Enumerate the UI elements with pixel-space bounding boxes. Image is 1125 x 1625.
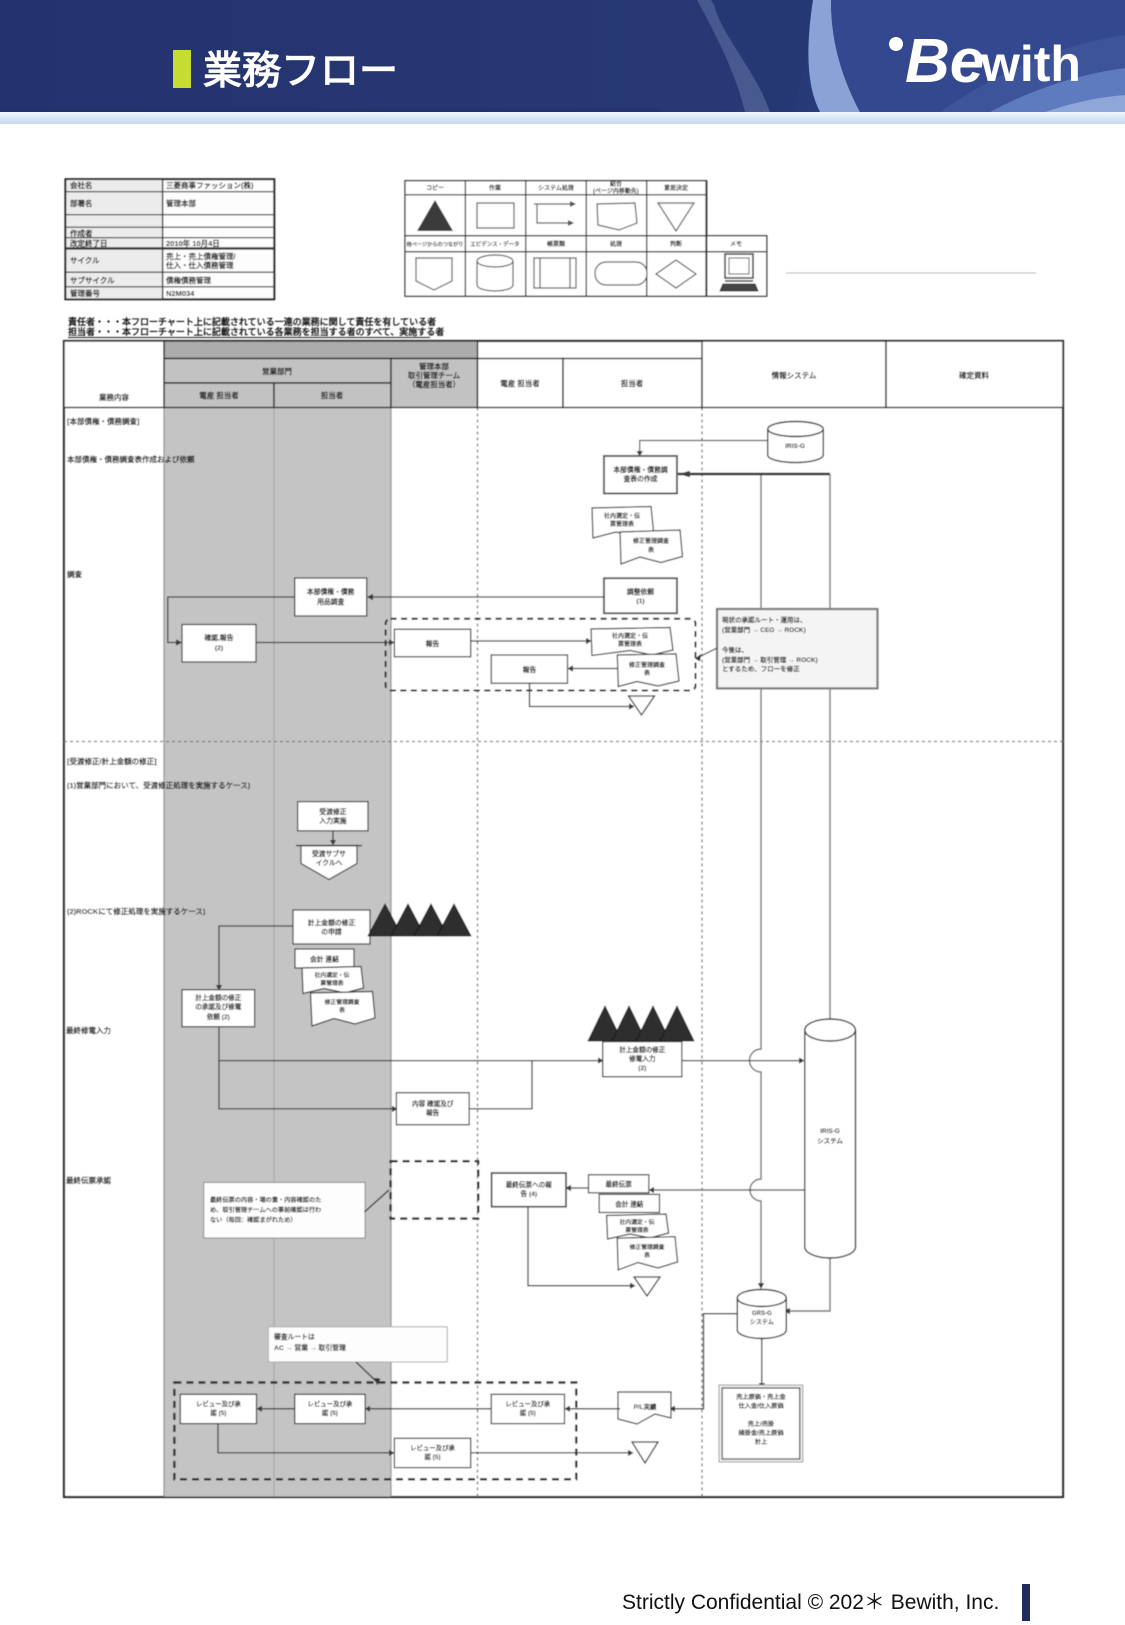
svg-text:確定資料: 確定資料 xyxy=(958,370,989,380)
svg-text:認 (5): 認 (5) xyxy=(425,1452,441,1461)
svg-text:エビデンス・データ: エビデンス・データ xyxy=(470,240,519,248)
svg-text:社内選定・伝: 社内選定・伝 xyxy=(314,971,350,979)
svg-text:修正管理調査: 修正管理調査 xyxy=(324,998,360,1006)
svg-text:最終伝票承認: 最終伝票承認 xyxy=(66,1175,111,1185)
svg-text:イクルへ: イクルへ xyxy=(316,858,343,867)
svg-text:帳票類: 帳票類 xyxy=(547,240,566,248)
svg-text:N2M034: N2M034 xyxy=(166,289,195,298)
svg-text:(1)営業部門において、受渡修正処理を実施するケース): (1)営業部門において、受渡修正処理を実施するケース) xyxy=(67,780,251,790)
svg-text:with: with xyxy=(980,36,1081,92)
svg-text:2010年 10月4日: 2010年 10月4日 xyxy=(166,238,220,248)
svg-text:認 (5): 認 (5) xyxy=(322,1408,338,1417)
svg-text:処理: 処理 xyxy=(609,240,622,248)
svg-text:とするため、フローを修正: とするため、フローを修正 xyxy=(722,664,800,673)
svg-text:(2): (2) xyxy=(638,1065,646,1072)
svg-text:(2): (2) xyxy=(215,645,223,652)
svg-text:売上原価・売上金: 売上原価・売上金 xyxy=(736,1393,786,1401)
svg-text:の承認及び修電: の承認及び修電 xyxy=(195,1002,242,1011)
svg-text:担当者: 担当者 xyxy=(321,390,344,400)
svg-text:社内選定・伝: 社内選定・伝 xyxy=(603,512,640,520)
svg-text:本部債権・債務調査表作成および依頼: 本部債権・債務調査表作成および依頼 xyxy=(66,454,195,464)
svg-text:最終修電入力: 最終修電入力 xyxy=(66,1025,111,1035)
svg-text:(2)ROCKにて修正処理を実施するケース): (2)ROCKにて修正処理を実施するケース) xyxy=(67,906,206,916)
svg-text:判断: 判断 xyxy=(670,240,682,248)
svg-text:告 (4): 告 (4) xyxy=(521,1189,537,1198)
svg-text:依頼 (2): 依頼 (2) xyxy=(207,1012,230,1021)
svg-text:管理本部: 管理本部 xyxy=(166,198,196,208)
svg-text:レビュー及び承: レビュー及び承 xyxy=(505,1399,550,1408)
svg-text:本部債権・債務調: 本部債権・債務調 xyxy=(613,465,668,474)
svg-text:諸掛金/売上原価: 諸掛金/売上原価 xyxy=(738,1429,784,1437)
svg-text:修正管理調査: 修正管理調査 xyxy=(632,537,669,545)
svg-text:票管理表: 票管理表 xyxy=(617,640,643,648)
svg-text:Be: Be xyxy=(905,27,984,96)
svg-text:票管理表: 票管理表 xyxy=(609,520,635,528)
svg-text:[本部債権・債務調査]: [本部債権・債務調査] xyxy=(67,416,140,426)
svg-text:認 (5): 認 (5) xyxy=(520,1408,536,1417)
svg-text:修正管理調査: 修正管理調査 xyxy=(629,1243,665,1251)
svg-text:受渡サブサ: 受渡サブサ xyxy=(312,849,346,858)
svg-text:Strictly Confidential © 202＊: Strictly Confidential © 202＊ Bewith, Inc… xyxy=(622,1591,999,1614)
svg-text:IRIS-G: IRIS-G xyxy=(785,443,805,450)
svg-text:管理本部: 管理本部 xyxy=(419,361,449,371)
svg-text:計上金額の修正: 計上金額の修正 xyxy=(195,993,242,1002)
svg-text:債権債務管理: 債権債務管理 xyxy=(165,275,211,285)
svg-text:[受渡修正/計上金額の修正]: [受渡修正/計上金額の修正] xyxy=(67,756,157,766)
svg-text:入力実施: 入力実施 xyxy=(319,816,346,825)
svg-text:内容 確認及び: 内容 確認及び xyxy=(412,1099,454,1108)
svg-text:担当者: 担当者 xyxy=(621,378,644,388)
svg-text:計上: 計上 xyxy=(755,1438,768,1446)
svg-text:（電産担当者）: （電産担当者） xyxy=(408,379,461,389)
svg-text:GRS-G: GRS-G xyxy=(752,1311,772,1317)
svg-text:現状の承認ルート・運用は、: 現状の承認ルート・運用は、 xyxy=(722,615,807,624)
svg-text:最終伝票の内容・場の重・内容確認のた: 最終伝票の内容・場の重・内容確認のた xyxy=(210,1196,321,1204)
svg-text:管理番号: 管理番号 xyxy=(70,288,100,298)
svg-text:会計 連結: 会計 連結 xyxy=(615,1200,644,1209)
svg-text:表: 表 xyxy=(644,1251,650,1259)
svg-text:修電入力: 修電入力 xyxy=(628,1054,656,1063)
svg-text:報告: 報告 xyxy=(426,639,440,648)
svg-text:め、取引管理チームへの事前確認は行わ: め、取引管理チームへの事前確認は行わ xyxy=(210,1206,321,1214)
svg-text:認 (5): 認 (5) xyxy=(210,1408,226,1417)
svg-text:表: 表 xyxy=(339,1006,345,1014)
svg-text:本部債権・債務: 本部債権・債務 xyxy=(307,587,355,596)
svg-text:調査: 調査 xyxy=(67,569,82,579)
svg-text:審査ルートは: 審査ルートは xyxy=(273,1332,315,1341)
svg-text:結合: 結合 xyxy=(610,180,623,188)
svg-text:業務フロー: 業務フロー xyxy=(203,50,398,93)
svg-text:最終伝票: 最終伝票 xyxy=(606,1180,633,1189)
svg-text:意思決定: 意思決定 xyxy=(664,184,688,192)
svg-text:情報システム: 情報システム xyxy=(771,370,817,380)
svg-text:ない（毎回：確認まがれため）: ない（毎回：確認まがれため） xyxy=(210,1216,297,1224)
svg-text:電産 担当者: 電産 担当者 xyxy=(199,390,239,400)
svg-text:他ページからのつながり: 他ページからのつながり xyxy=(406,240,464,248)
svg-text:営業部門: 営業部門 xyxy=(262,366,292,376)
svg-text:票管理表: 票管理表 xyxy=(320,979,343,987)
svg-text:計上金額の修正: 計上金額の修正 xyxy=(308,918,356,927)
svg-text:三菱商事ファッション(株): 三菱商事ファッション(株) xyxy=(166,180,254,190)
svg-text:確認,報告: 確認,報告 xyxy=(204,633,233,642)
svg-text:電産 担当者: 電産 担当者 xyxy=(500,378,540,388)
svg-text:サブサイクル: サブサイクル xyxy=(70,275,115,285)
svg-text:コピー: コピー xyxy=(426,184,444,192)
svg-text:用品調査: 用品調査 xyxy=(316,597,344,606)
svg-text:(ページ内移動先): (ページ内移動先) xyxy=(593,187,639,195)
svg-text:計上金額の修正: 計上金額の修正 xyxy=(619,1045,666,1054)
svg-text:IRIS-G: IRIS-G xyxy=(820,1128,840,1135)
svg-text:P/L実績: P/L実績 xyxy=(634,1402,657,1411)
svg-text:報告: 報告 xyxy=(426,1108,440,1117)
svg-text:報告: 報告 xyxy=(523,665,537,674)
svg-text:(営業部門 → 取引管理 → ROCK): (営業部門 → 取引管理 → ROCK) xyxy=(722,655,818,664)
svg-text:業務内容: 業務内容 xyxy=(98,392,129,402)
svg-text:受渡修正: 受渡修正 xyxy=(319,807,346,816)
svg-text:サイクル: サイクル xyxy=(70,255,100,265)
svg-text:部署名: 部署名 xyxy=(70,198,93,208)
svg-text:レビュー及び承: レビュー及び承 xyxy=(308,1399,353,1408)
svg-text:取引管理チーム: 取引管理チーム xyxy=(408,370,461,380)
svg-text:会計 連結: 会計 連結 xyxy=(310,955,339,964)
svg-text:担当者・・・本フローチャート上に記載されている各業務を担当す: 担当者・・・本フローチャート上に記載されている各業務を担当する者のすべて、実施す… xyxy=(68,326,444,337)
svg-text:AC → 営業 → 取引管理: AC → 営業 → 取引管理 xyxy=(274,1343,346,1352)
svg-text:メモ: メモ xyxy=(730,241,742,248)
svg-text:(1): (1) xyxy=(636,598,644,605)
svg-text:システム: システム xyxy=(817,1137,843,1145)
svg-text:の申請: の申請 xyxy=(321,927,342,936)
svg-text:レビュー及び承: レビュー及び承 xyxy=(196,1399,241,1408)
svg-text:レビュー及び承: レビュー及び承 xyxy=(410,1443,455,1452)
svg-text:システム処理: システム処理 xyxy=(538,184,574,192)
svg-text:社内選定・伝: 社内選定・伝 xyxy=(619,1218,655,1226)
svg-text:会社名: 会社名 xyxy=(70,180,93,190)
svg-text:最終伝票への報: 最終伝票への報 xyxy=(506,1180,553,1189)
svg-text:今後は、: 今後は、 xyxy=(722,645,748,654)
svg-text:票管理表: 票管理表 xyxy=(625,1226,648,1234)
svg-text:(営業部門 → CEO → ROCK): (営業部門 → CEO → ROCK) xyxy=(722,625,806,634)
svg-text:売上/売掛: 売上/売掛 xyxy=(748,1420,775,1428)
svg-text:仕入金/仕入原価: 仕入金/仕入原価 xyxy=(737,1402,784,1410)
svg-text:責任者・・・本フローチャート上に記載されている一連の業務に関: 責任者・・・本フローチャート上に記載されている一連の業務に関して責任を有している… xyxy=(68,316,436,327)
svg-text:表: 表 xyxy=(643,669,651,677)
svg-text:システム: システム xyxy=(750,1319,774,1326)
svg-text:改定終了日: 改定終了日 xyxy=(70,238,108,248)
svg-text:調整依頼: 調整依頼 xyxy=(627,587,654,596)
svg-text:表: 表 xyxy=(647,546,655,554)
svg-text:査表の作成: 査表の作成 xyxy=(623,474,658,483)
svg-text:仕入・仕入債務管理: 仕入・仕入債務管理 xyxy=(165,260,234,270)
svg-text:修正管理調査: 修正管理調査 xyxy=(628,661,665,669)
svg-text:作成者: 作成者 xyxy=(70,228,93,238)
svg-text:社内選定・伝: 社内選定・伝 xyxy=(611,632,648,640)
svg-text:売上・売上債権管理/: 売上・売上債権管理/ xyxy=(166,251,236,261)
svg-text:作業: 作業 xyxy=(489,184,502,192)
